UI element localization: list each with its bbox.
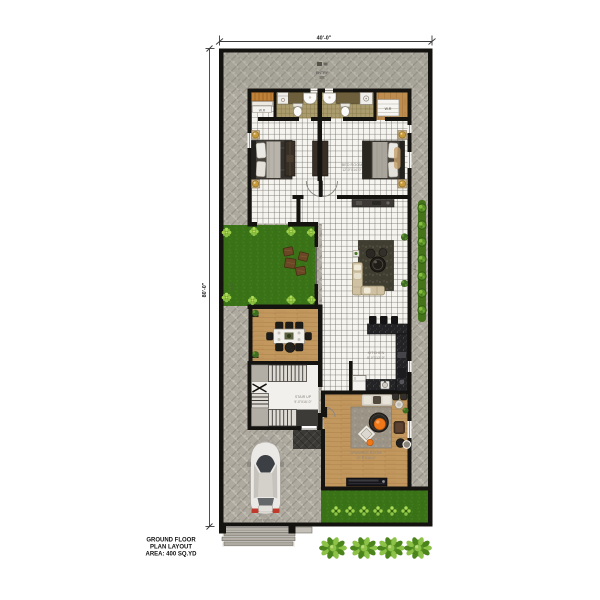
svg-text:12'-0"X14'-0": 12'-0"X14'-0" (342, 168, 362, 172)
svg-text:80'-0": 80'-0" (202, 282, 208, 297)
svg-text:STAIR UP: STAIR UP (295, 395, 312, 399)
svg-text:W.R: W.R (259, 109, 266, 113)
svg-text:PLAN LAYOUT: PLAN LAYOUT (150, 545, 192, 551)
svg-text:GROUND FLOOR: GROUND FLOOR (146, 538, 196, 544)
svg-text:DRAWING ROOM: DRAWING ROOM (350, 451, 381, 455)
svg-text:8'-0"X12'-0": 8'-0"X12'-0" (367, 356, 385, 360)
svg-text:12'-6"X14'-0": 12'-6"X14'-0" (356, 456, 376, 460)
svg-text:AREA: 400 SQ.YD: AREA: 400 SQ.YD (145, 552, 197, 558)
svg-text:9'-0"X16'-0": 9'-0"X16'-0" (294, 400, 312, 404)
svg-text:CAR PORCH: CAR PORCH (255, 519, 276, 523)
svg-text:4'-0": 4'-0" (230, 282, 234, 290)
svg-text:ENTRY: ENTRY (316, 71, 329, 75)
svg-text:KITCHEN: KITCHEN (368, 351, 385, 355)
svg-text:4'-0": 4'-0" (413, 263, 417, 271)
svg-text:40'-0": 40'-0" (317, 36, 332, 42)
svg-text:W.R: W.R (385, 107, 392, 111)
svg-text:BED ROOM: BED ROOM (342, 163, 363, 167)
